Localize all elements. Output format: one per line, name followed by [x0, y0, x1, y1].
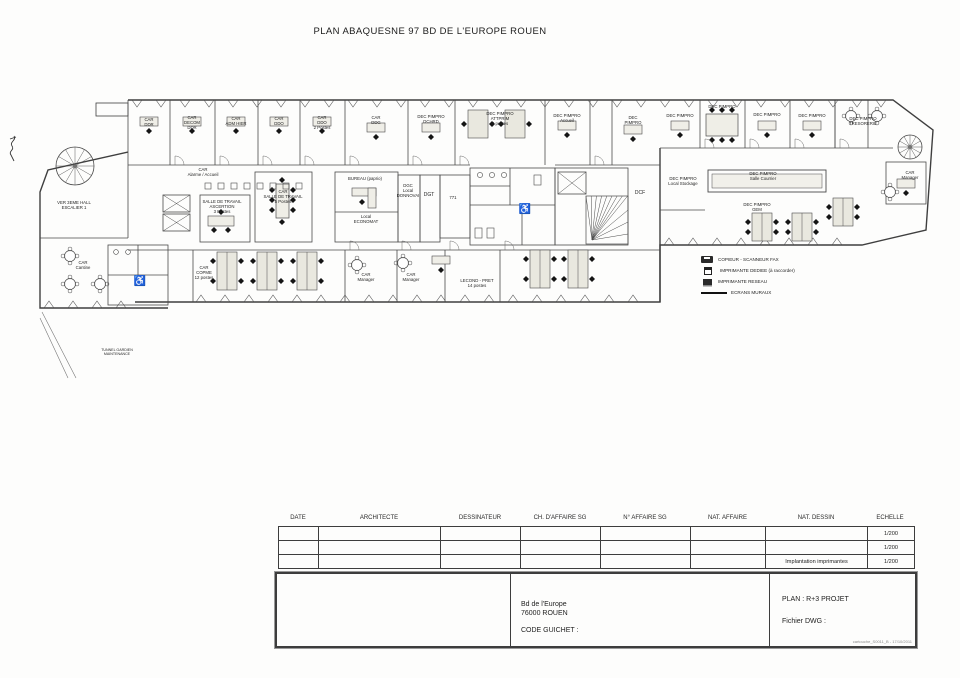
cell [319, 541, 441, 554]
copier-icon [701, 256, 713, 263]
svg-text:DEC PIMPRO: DEC PIMPRO [708, 104, 736, 109]
cartouche-address-cell: Bd de l'Europe 76000 ROUEN CODE GUICHET … [511, 574, 770, 646]
svg-text:DEC PIMPROTRESORERIE: DEC PIMPROTRESORERIE [849, 116, 877, 126]
svg-text:DEC PIMPRO: DEC PIMPRO [666, 113, 694, 118]
cell [441, 527, 521, 540]
cartouche-drawing-cell: PLAN : R+3 PROJET Fichier DWG : cartouch… [770, 574, 915, 646]
svg-text:CARCOPME12 postes: CARCOPME12 postes [195, 265, 214, 280]
header-ch-affaire: CH. D'AFFAIRE SG [520, 515, 600, 521]
cell [441, 555, 521, 568]
title-block-headers: DATE ARCHITECTE DESSINATEUR CH. D'AFFAIR… [278, 515, 913, 521]
cell [521, 555, 601, 568]
svg-text:LECOND - PRET14 postes: LECOND - PRET14 postes [460, 278, 494, 288]
wall-line-symbol [701, 292, 727, 294]
handwritten-mark [10, 136, 16, 161]
header-dessinateur: DESSINATEUR [440, 515, 520, 521]
dedicated-printer-icon [704, 267, 712, 275]
table-row: 1/200 [279, 527, 914, 541]
network-printer-icon [703, 279, 712, 285]
legend-label: COPIEUR - SCANNEUR FAX [718, 257, 779, 262]
cell [766, 541, 868, 554]
header-architecte: ARCHITECTE [318, 515, 440, 521]
svg-text:DEC PIMPROLocal Stockage: DEC PIMPROLocal Stockage [668, 176, 698, 186]
svg-text:CARDDG: CARDDG [371, 115, 381, 125]
cell [521, 541, 601, 554]
svg-text:DECPIMPRO: DECPIMPRO [625, 115, 643, 125]
ramp-lines [40, 312, 76, 378]
scale-cell: 1/200 [868, 555, 914, 568]
cell [691, 555, 766, 568]
legend-item: COPIEUR - SCANNEUR FAX [701, 254, 795, 265]
cartouche-empty-cell [277, 574, 511, 646]
cell [766, 527, 868, 540]
header-date: DATE [278, 515, 318, 521]
header-nat-dessin: NAT. DESSIN [765, 515, 867, 521]
scanned-floor-plan-sheet: PLAN ABAQUESNE 97 BD DE L'EUROPE ROUEN [0, 0, 960, 678]
scale-cell: 1/200 [868, 527, 914, 540]
svg-text:CARDDR: CARDDR [144, 117, 153, 127]
svg-text:CARDDO: CARDDO [274, 116, 284, 126]
cell [691, 541, 766, 554]
svg-text:CARAlarme / Accueil: CARAlarme / Accueil [188, 167, 219, 177]
svg-text:771: 771 [449, 195, 457, 200]
svg-text:DCF: DCF [635, 190, 645, 196]
header-echelle: ECHELLE [867, 515, 913, 521]
svg-text:CARManager: CARManager [358, 272, 376, 282]
cell [279, 527, 319, 540]
svg-text:CARSALLE DE TRAVAIL5 Postes: CARSALLE DE TRAVAIL5 Postes [264, 189, 304, 204]
legend-item: IMPRIMANTE RESEAU [701, 276, 795, 287]
svg-text:DEC PIMPRO: DEC PIMPRO [798, 113, 826, 118]
legend-item: IMPRIMANTE DEDIEE (à raccorder) [701, 265, 795, 276]
svg-text:DEC PIMPROSalle Courrier: DEC PIMPROSalle Courrier [749, 171, 777, 181]
cell [279, 541, 319, 554]
scale-cell: 1/200 [868, 541, 914, 554]
title-block-table: 1/200 1/200 Implantation imprimantes 1/2… [278, 526, 915, 569]
dwg-file-label: Fichier DWG : [782, 618, 826, 625]
cell [279, 555, 319, 568]
cell [691, 527, 766, 540]
svg-text:SALLE DE TRAVAILASCERTION3 Pos: SALLE DE TRAVAILASCERTION3 Postes [203, 199, 243, 214]
legend-label: IMPRIMANTE DEDIEE (à raccorder) [720, 268, 795, 273]
svg-text:CARManager: CARManager [902, 170, 920, 180]
cell [601, 541, 691, 554]
cell [601, 555, 691, 568]
svg-text:DEC PIMPROGEM: DEC PIMPROGEM [743, 202, 771, 212]
svg-text:TUNNEL GARDIENMAINTENANCE: TUNNEL GARDIENMAINTENANCE [101, 348, 133, 356]
svg-text:BUREAU (paprio): BUREAU (paprio) [348, 176, 382, 181]
svg-text:CARManager: CARManager [403, 272, 421, 282]
cell [441, 541, 521, 554]
nat-dessin-cell: Implantation imprimantes [766, 555, 868, 568]
svg-text:DEC PIMPROAccueil: DEC PIMPROAccueil [553, 113, 581, 123]
cell [521, 527, 601, 540]
plan-name: PLAN : R+3 PROJET [782, 596, 849, 603]
legend-item: ECRANS MURAUX [701, 287, 795, 298]
svg-text:CARCantine: CARCantine [76, 260, 91, 270]
svg-text:VER 3EME HALLESCALIER 1: VER 3EME HALLESCALIER 1 [57, 200, 91, 210]
header-num-affaire: N° AFFAIRE SG [600, 515, 690, 521]
address-line1: Bd de l'Europe [521, 600, 568, 609]
address-line2: 76000 ROUEN [521, 609, 568, 618]
cartouche-reference: cartouche_S0011_B - 17/10/2011 [853, 639, 912, 644]
cartouche: Bd de l'Europe 76000 ROUEN CODE GUICHET … [275, 572, 917, 648]
table-row: 1/200 [279, 541, 914, 555]
legend-label: ECRANS MURAUX [731, 290, 771, 295]
cell [601, 527, 691, 540]
svg-text:DGCLocalDONNOVAI: DGCLocalDONNOVAI [397, 183, 420, 198]
svg-text:DEC PIMPRODCHRD: DEC PIMPRODCHRD [417, 114, 445, 124]
cell [319, 527, 441, 540]
code-guichet-label: CODE GUICHET : [521, 627, 578, 634]
svg-text:DGT: DGT [424, 192, 435, 198]
svg-text:DEC PIMPRO: DEC PIMPRO [753, 112, 781, 117]
svg-text:♿: ♿ [519, 202, 531, 215]
table-row: Implantation imprimantes 1/200 [279, 555, 914, 568]
svg-text:LocalECONOMAT: LocalECONOMAT [354, 214, 379, 224]
cell [319, 555, 441, 568]
plan-legend: COPIEUR - SCANNEUR FAX IMPRIMANTE DEDIEE… [701, 254, 795, 298]
header-nat-affaire: NAT. AFFAIRE [690, 515, 765, 521]
legend-label: IMPRIMANTE RESEAU [718, 279, 767, 284]
svg-text:♿: ♿ [134, 274, 146, 287]
